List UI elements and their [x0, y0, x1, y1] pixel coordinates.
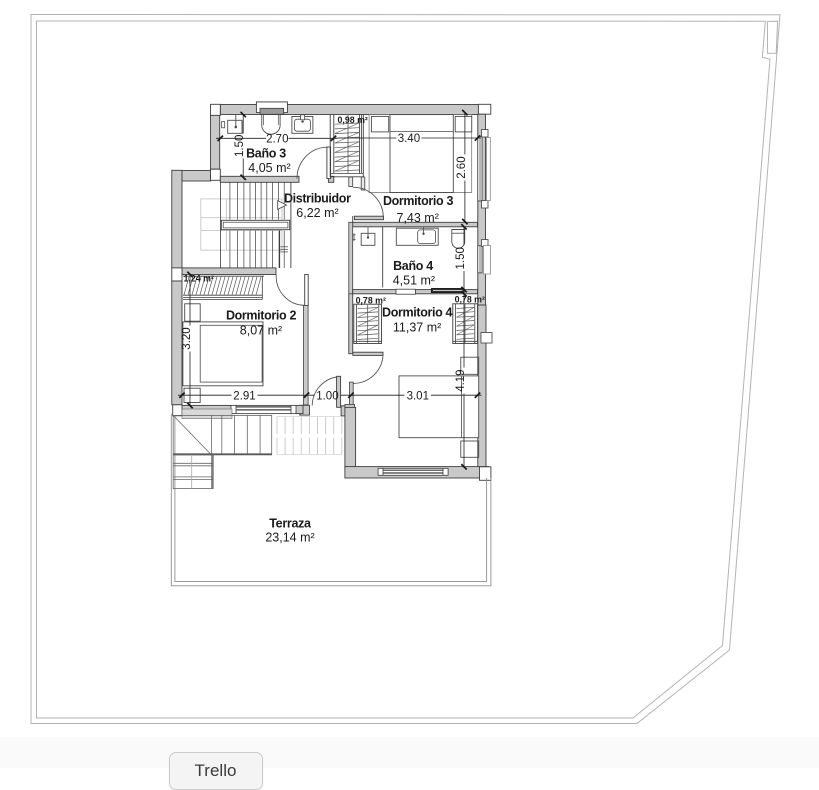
svg-text:Terraza: Terraza: [269, 517, 312, 531]
svg-text:2.60: 2.60: [456, 156, 468, 178]
svg-text:1.50: 1.50: [234, 135, 246, 157]
svg-text:3.20: 3.20: [181, 327, 193, 349]
svg-text:0,98 m²: 0,98 m²: [338, 115, 368, 125]
svg-text:0,78 m²: 0,78 m²: [455, 295, 485, 305]
svg-text:4,05 m²: 4,05 m²: [248, 161, 290, 175]
svg-text:3.40: 3.40: [398, 133, 420, 145]
svg-text:4,51 m²: 4,51 m²: [393, 274, 435, 288]
svg-text:0,78 m²: 0,78 m²: [356, 296, 386, 306]
svg-text:Baño 3: Baño 3: [246, 147, 286, 161]
svg-text:Dormitorio 2: Dormitorio 2: [226, 309, 297, 323]
svg-text:4.19: 4.19: [455, 369, 467, 391]
svg-text:1.50: 1.50: [455, 247, 467, 269]
svg-text:Baño 4: Baño 4: [393, 259, 433, 273]
svg-text:23,14 m²: 23,14 m²: [265, 531, 314, 545]
svg-text:Dormitorio 4: Dormitorio 4: [382, 306, 453, 320]
svg-text:7,43 m²: 7,43 m²: [397, 211, 439, 225]
svg-text:8,07 m²: 8,07 m²: [240, 324, 282, 338]
svg-text:2.70: 2.70: [266, 133, 288, 145]
svg-text:1,24 m²: 1,24 m²: [184, 274, 214, 284]
svg-text:2.91: 2.91: [233, 390, 255, 402]
svg-text:6,22 m²: 6,22 m²: [296, 206, 338, 220]
svg-text:3.01: 3.01: [407, 390, 429, 402]
svg-text:1.00: 1.00: [316, 390, 338, 402]
svg-text:Dormitorio 3: Dormitorio 3: [383, 194, 454, 208]
svg-text:11,37 m²: 11,37 m²: [393, 321, 441, 335]
svg-text:Distribuidor: Distribuidor: [284, 191, 351, 205]
